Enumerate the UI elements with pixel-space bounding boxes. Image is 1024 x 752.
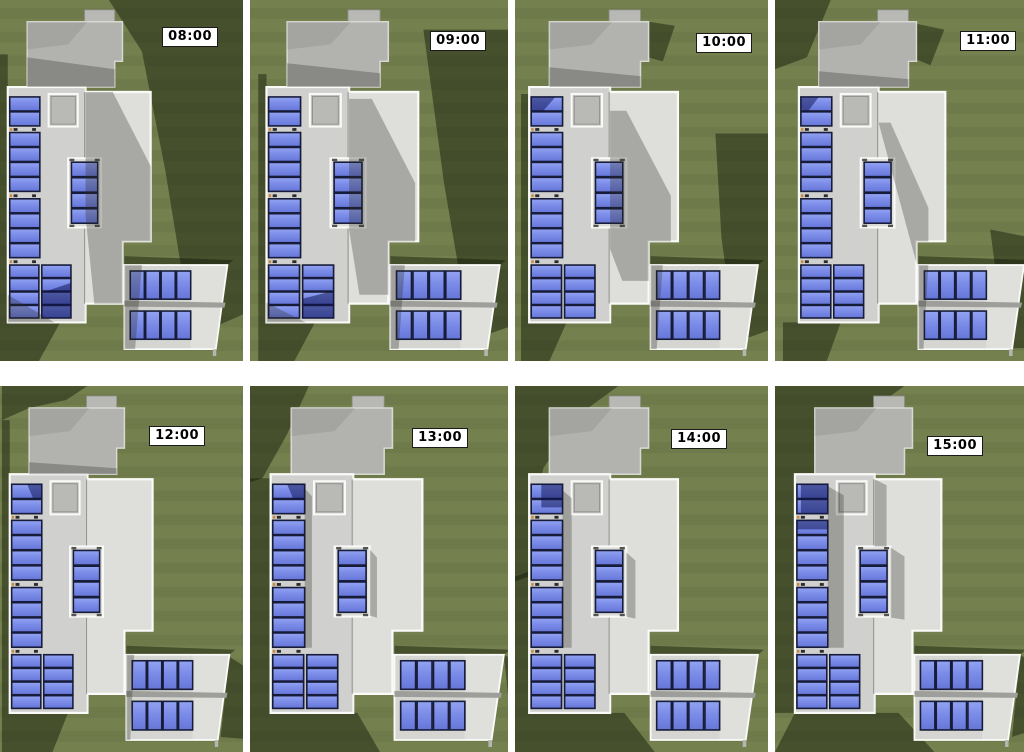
pv-panel (10, 162, 40, 176)
pv-panel (531, 265, 561, 278)
mounting-bracket (32, 260, 36, 263)
frame-connector (97, 614, 102, 616)
pv-panel (860, 582, 887, 597)
pv-panel (179, 661, 193, 690)
mounting-bracket (14, 260, 18, 263)
time-frame-1500: 15:00 (775, 386, 1024, 752)
mounting-clip (797, 583, 799, 586)
panel-shadow-polygon (801, 484, 828, 513)
pv-panel (860, 598, 887, 613)
pv-panel (269, 229, 301, 243)
chimney (874, 396, 905, 409)
pv-panel (797, 588, 828, 602)
pv-panel (531, 214, 562, 228)
roof-shadow-polygon (563, 490, 572, 647)
pv-panel (834, 265, 864, 278)
pv-panel (801, 177, 832, 191)
pv-panel (146, 311, 160, 339)
pv-panel (936, 661, 950, 690)
pv-panel (273, 668, 304, 681)
shading-scene (250, 0, 508, 361)
mounting-bracket (805, 260, 809, 263)
pv-panel (797, 682, 827, 695)
mounting-clip (531, 194, 534, 197)
panel-shadow (797, 484, 828, 529)
frame-connector (336, 547, 341, 549)
pv-panel (163, 661, 177, 690)
mounting-bracket (805, 128, 809, 131)
shading-scene (775, 0, 1024, 361)
pv-panel (797, 668, 827, 681)
pv-panel (801, 162, 832, 176)
pv-panel (689, 271, 704, 299)
frame-connector (71, 547, 76, 549)
pv-panel (834, 305, 864, 318)
carport-leg (743, 349, 747, 356)
mounting-bracket (535, 128, 539, 131)
pv-panel (801, 112, 832, 126)
mounting-bracket (535, 650, 539, 653)
pv-panel (269, 292, 300, 305)
pv-panel (531, 655, 561, 668)
mounting-bracket (34, 583, 38, 586)
pv-panel (179, 701, 193, 730)
pv-panel (864, 193, 891, 207)
pv-panel (307, 668, 338, 681)
pv-panel (12, 633, 42, 647)
pv-panel (273, 536, 305, 550)
pv-panel (565, 292, 595, 305)
pv-panel (860, 550, 887, 565)
lawn-shadow-polygon (521, 94, 529, 322)
mounting-clip (801, 128, 803, 131)
mounting-bracket (16, 583, 20, 586)
mounting-bracket (277, 650, 281, 653)
pv-panel (797, 603, 828, 617)
mounting-clip (269, 128, 272, 131)
pv-panel (830, 696, 860, 709)
pv-panel (12, 682, 41, 695)
pv-panel (269, 265, 300, 278)
pv-panel (338, 550, 366, 565)
pv-panel (273, 682, 304, 695)
frame-connector (884, 614, 889, 616)
middle-panel-array (70, 546, 103, 616)
pv-panel (269, 112, 301, 126)
pv-panel (952, 661, 966, 690)
mounting-bracket (554, 650, 558, 653)
pv-panel (269, 177, 301, 191)
mounting-bracket (824, 194, 828, 197)
pv-panel (531, 162, 562, 176)
carport-leg (743, 740, 747, 747)
pv-panel (801, 305, 831, 318)
pv-panel (595, 598, 622, 613)
pv-panel (44, 696, 73, 709)
pv-panel (429, 311, 444, 339)
frame-connector (69, 225, 74, 227)
pv-panel (413, 311, 428, 339)
pv-panel (657, 661, 672, 690)
lawn-shadow-polygon (250, 478, 271, 752)
pv-panel (273, 696, 304, 709)
carport (651, 655, 758, 747)
shading-scene (775, 386, 1024, 752)
roof-shadow-polygon (626, 552, 635, 618)
skylight-pane (53, 484, 77, 512)
roof-shadow-polygon (828, 486, 844, 647)
pv-panel (338, 598, 366, 613)
time-label: 13:00 (412, 428, 468, 448)
pv-panel (161, 271, 175, 299)
pv-panel (834, 279, 864, 292)
pv-panel (10, 199, 40, 213)
pv-panel (531, 292, 561, 305)
pv-panel (940, 311, 954, 339)
pv-panel (429, 271, 444, 299)
mounting-bracket (535, 516, 539, 519)
mounting-clip (10, 128, 12, 131)
pv-panel (864, 162, 891, 176)
skylight-pane (843, 96, 868, 124)
pv-panel (705, 271, 720, 299)
chimney (348, 10, 380, 23)
pv-panel (338, 566, 366, 581)
pv-panel (920, 661, 934, 690)
pv-panel (12, 668, 41, 681)
pv-panel (44, 682, 73, 695)
mounting-clip (797, 516, 799, 519)
frame-connector (858, 614, 863, 616)
frame-connector (363, 547, 368, 549)
middle-panel-array (592, 546, 626, 616)
pv-panel (797, 618, 828, 632)
pv-panel (273, 566, 305, 580)
carport (394, 655, 503, 747)
pv-panel (797, 655, 827, 668)
skylight-pane (51, 96, 75, 124)
mounting-bracket (16, 516, 20, 519)
carport-leg (484, 349, 488, 356)
pv-panel (273, 655, 304, 668)
lawn-shadow-polygon (0, 54, 8, 322)
mounting-bracket (14, 194, 18, 197)
mounting-clip (273, 583, 276, 586)
pv-panel (801, 133, 832, 147)
pv-panel (565, 682, 595, 695)
shading-scene (515, 0, 768, 361)
mounting-clip (531, 128, 534, 131)
carport-leg (1009, 349, 1012, 356)
pv-panel (273, 633, 305, 647)
mounting-clip (531, 260, 534, 263)
mounting-clip (269, 194, 272, 197)
pv-panel (12, 696, 41, 709)
shading-scene (515, 386, 768, 752)
pv-panel (801, 292, 831, 305)
frame-connector (71, 614, 76, 616)
carport (914, 655, 1020, 747)
lawn-shadow-polygon (2, 420, 10, 713)
frame-connector (888, 225, 893, 227)
carport-leg (213, 349, 216, 356)
pv-panel (797, 633, 828, 647)
pv-panel (531, 133, 562, 147)
pv-panel (940, 271, 954, 299)
time-label: 08:00 (162, 27, 218, 47)
roof-shadow-polygon (305, 488, 312, 647)
pv-panel (801, 265, 831, 278)
mounting-bracket (820, 650, 824, 653)
pv-panel (864, 209, 891, 223)
skylight-pane (574, 484, 599, 512)
mounting-bracket (296, 583, 300, 586)
time-frame-0900: 09:00 (250, 0, 508, 361)
mounting-bracket (554, 583, 558, 586)
pv-panel (269, 279, 300, 292)
pv-panel (73, 582, 99, 597)
pv-panel (10, 229, 40, 243)
panel-shadow-polygon (797, 520, 828, 529)
pv-panel (830, 668, 860, 681)
frame-connector (593, 225, 598, 227)
pv-panel (972, 311, 986, 339)
pv-panel (797, 696, 827, 709)
pv-panel (12, 618, 42, 632)
pv-panel (531, 199, 562, 213)
time-label: 14:00 (671, 429, 727, 449)
pv-panel (834, 292, 864, 305)
pv-panel (12, 520, 42, 534)
middle-panel-array (335, 546, 370, 616)
mounting-bracket (554, 128, 558, 131)
chimney (87, 396, 117, 409)
pv-panel (565, 265, 595, 278)
pv-panel (956, 271, 970, 299)
roof-shadow-polygon (370, 549, 377, 617)
pv-panel (401, 661, 416, 690)
frame-connector (336, 614, 341, 616)
time-frame-0800: 08:00 (0, 0, 243, 361)
pv-panel (10, 177, 40, 191)
pv-panel (10, 133, 40, 147)
mounting-bracket (801, 583, 805, 586)
mounting-bracket (277, 516, 281, 519)
carport (651, 265, 758, 356)
pv-panel (830, 682, 860, 695)
pv-panel (705, 661, 720, 690)
pv-panel (657, 701, 672, 730)
pv-panel (132, 661, 146, 690)
pv-panel (797, 566, 828, 580)
pv-panel (401, 701, 416, 730)
pv-panel (531, 588, 562, 602)
pv-panel (595, 550, 622, 565)
pv-panel (531, 682, 561, 695)
pv-panel (307, 696, 338, 709)
pv-panel (269, 97, 301, 111)
pv-panel (531, 147, 562, 161)
panel-shadow-polygon (541, 484, 562, 507)
chimney (878, 10, 909, 23)
frame-connector (858, 547, 863, 549)
frame-connector (884, 547, 889, 549)
frame-connector (332, 225, 337, 227)
pv-panel (531, 618, 562, 632)
mounting-clip (273, 516, 276, 519)
middle-panel-array (857, 546, 891, 616)
pv-panel (801, 214, 832, 228)
pv-panel (177, 311, 191, 339)
mounting-bracket (296, 516, 300, 519)
time-label: 12:00 (149, 426, 205, 446)
frame-connector (862, 225, 867, 227)
pv-panel (673, 271, 688, 299)
mounting-bracket (535, 194, 539, 197)
pv-panel (531, 551, 562, 565)
carport (126, 655, 229, 747)
pv-panel (531, 229, 562, 243)
mounting-clip (801, 260, 803, 263)
pv-panel (705, 701, 720, 730)
mounting-bracket (273, 128, 277, 131)
mounting-bracket (801, 650, 805, 653)
pv-panel (952, 701, 966, 730)
pv-panel (163, 701, 177, 730)
pv-panel (801, 244, 832, 258)
pv-panel (273, 603, 305, 617)
pv-panel (565, 696, 595, 709)
time-frame-1100: 11:00 (775, 0, 1024, 361)
mounting-bracket (34, 516, 38, 519)
panel-shadow (541, 484, 562, 507)
mounting-clip (10, 194, 12, 197)
pv-panel (417, 701, 432, 730)
lawn-shadow-polygon (515, 572, 529, 752)
pv-panel (433, 701, 448, 730)
mounting-bracket (34, 650, 38, 653)
pv-panel (44, 668, 73, 681)
time-frame-1200: 12:00 (0, 386, 243, 752)
pv-panel (273, 588, 305, 602)
pv-panel (10, 265, 39, 278)
pv-panel (269, 214, 301, 228)
pv-panel (956, 311, 970, 339)
mounting-bracket (273, 260, 277, 263)
mounting-bracket (535, 260, 539, 263)
pv-panel (801, 229, 832, 243)
pv-panel (446, 311, 461, 339)
pv-panel (968, 661, 982, 690)
shading-scene (0, 386, 243, 752)
mounting-bracket (296, 650, 300, 653)
pv-panel (269, 199, 301, 213)
pv-panel (12, 551, 42, 565)
pv-panel (705, 311, 720, 339)
pv-panel (801, 199, 832, 213)
mounting-bracket (801, 516, 805, 519)
pv-panel (531, 536, 562, 550)
mounting-bracket (824, 128, 828, 131)
mounting-clip (269, 260, 272, 263)
pv-panel (73, 566, 99, 581)
pv-panel (689, 661, 704, 690)
pv-panel (689, 701, 704, 730)
shading-study-grid: 08:00 09:00 10:00 11:00 12:00 13:00 14:0… (0, 0, 1024, 752)
pv-panel (269, 162, 301, 176)
shading-scene (250, 386, 508, 752)
frame-connector (593, 159, 598, 161)
pv-panel (531, 603, 562, 617)
mounting-clip (531, 583, 534, 586)
skylight-pane (312, 96, 338, 124)
pv-panel (303, 265, 334, 278)
pv-panel (924, 311, 938, 339)
time-label: 15:00 (927, 436, 983, 456)
pv-panel (132, 701, 146, 730)
time-label: 11:00 (960, 31, 1016, 51)
mounting-bracket (292, 260, 296, 263)
pv-panel (797, 551, 828, 565)
pv-panel (801, 279, 831, 292)
pv-panel (148, 661, 162, 690)
pv-panel (531, 112, 562, 126)
mounting-clip (10, 260, 12, 263)
pv-panel (797, 536, 828, 550)
pv-panel (12, 603, 42, 617)
pv-panel (413, 271, 428, 299)
pv-panel (972, 271, 986, 299)
chimney (609, 10, 640, 23)
chimney (85, 10, 115, 23)
mounting-bracket (554, 194, 558, 197)
pv-panel (531, 696, 561, 709)
pv-panel (269, 147, 301, 161)
frame-connector (593, 547, 598, 549)
pv-panel (10, 214, 40, 228)
pv-panel (801, 147, 832, 161)
pv-panel (531, 566, 562, 580)
roof-shadow-polygon (875, 479, 887, 546)
pv-panel (273, 551, 305, 565)
mounting-bracket (292, 128, 296, 131)
time-frame-1000: 10:00 (515, 0, 768, 361)
pv-panel (44, 655, 73, 668)
pv-panel (10, 97, 40, 111)
mounting-bracket (273, 194, 277, 197)
pv-panel (673, 311, 688, 339)
pv-panel (565, 279, 595, 292)
lawn-shadow-polygon (258, 74, 266, 322)
pv-panel (565, 668, 595, 681)
frame-connector (862, 159, 867, 161)
time-label: 09:00 (430, 31, 486, 51)
time-frame-1400: 14:00 (515, 386, 768, 752)
mounting-clip (801, 194, 803, 197)
mounting-clip (12, 650, 14, 653)
skylight-pane (317, 484, 343, 512)
pv-panel (673, 701, 688, 730)
lawn-stripe (515, 8, 768, 19)
pv-panel (450, 701, 465, 730)
pv-panel (689, 311, 704, 339)
pv-panel (417, 661, 432, 690)
pv-panel (273, 520, 305, 534)
pv-panel (10, 244, 40, 258)
pv-panel (273, 618, 305, 632)
chimney (609, 396, 640, 409)
mounting-clip (531, 650, 534, 653)
